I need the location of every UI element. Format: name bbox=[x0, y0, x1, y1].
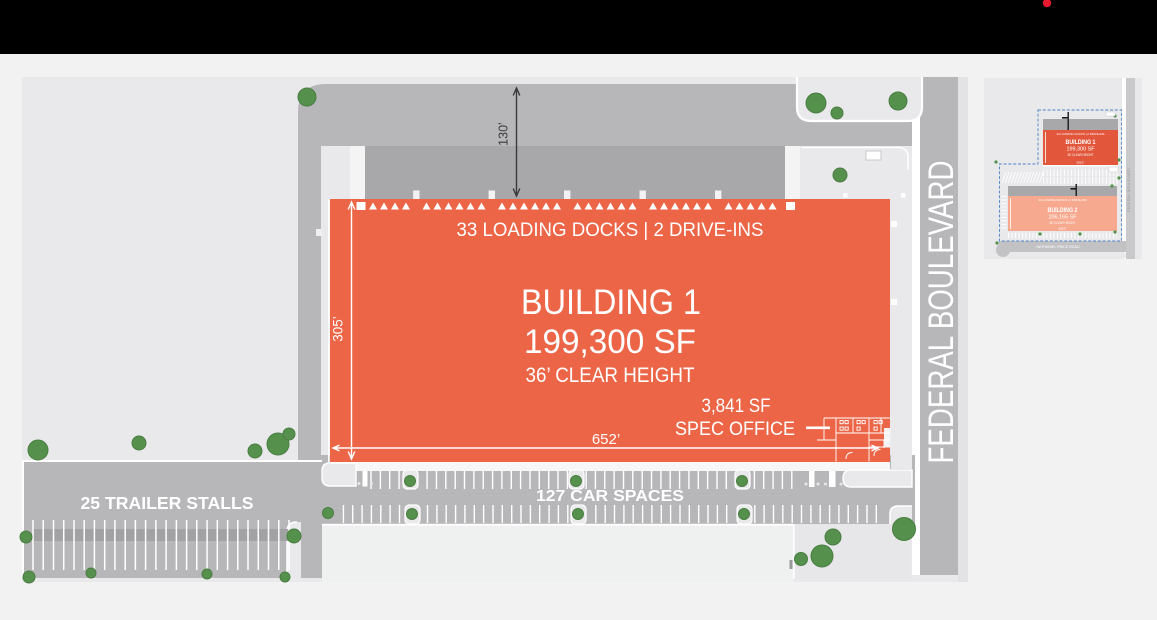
svg-text:3,841 SF: 3,841 SF bbox=[702, 395, 771, 417]
svg-text:BUILDING 1: BUILDING 1 bbox=[521, 283, 701, 322]
svg-text:199,300 SF: 199,300 SF bbox=[1067, 147, 1096, 153]
svg-text:NATHANIEL PRICE ROAD: NATHANIEL PRICE ROAD bbox=[1036, 245, 1080, 249]
svg-text:BUILDING 1: BUILDING 1 bbox=[1066, 140, 1097, 146]
svg-text:36’ CLEAR HEIGHT: 36’ CLEAR HEIGHT bbox=[1050, 221, 1076, 225]
svg-text:206,165 SF: 206,165 SF bbox=[1049, 215, 1078, 221]
svg-text:33 LOADING DOCKS | 2 DRIVE-INS: 33 LOADING DOCKS | 2 DRIVE-INS bbox=[457, 219, 764, 241]
svg-text:25 TRAILER STALLS: 25 TRAILER STALLS bbox=[81, 493, 254, 513]
svg-text:FEDERAL BOULEVARD: FEDERAL BOULEVARD bbox=[1126, 168, 1131, 212]
svg-text:32 LOADING DOCKS | 2 DRIVE-INS: 32 LOADING DOCKS | 2 DRIVE-INS bbox=[1039, 198, 1087, 202]
svg-text:BUILDING 2: BUILDING 2 bbox=[1048, 208, 1079, 214]
svg-text:199,300 SF: 199,300 SF bbox=[524, 323, 696, 361]
svg-text:36’ CLEAR HEIGHT: 36’ CLEAR HEIGHT bbox=[1068, 153, 1094, 157]
svg-text:FEDERAL BOULEVARD: FEDERAL BOULEVARD bbox=[922, 161, 961, 464]
svg-text:127 CAR SPACES: 127 CAR SPACES bbox=[536, 488, 684, 505]
svg-text:130’: 130’ bbox=[497, 122, 511, 146]
svg-text:652’: 652’ bbox=[592, 431, 620, 448]
svg-text:SPEC OFFICE: SPEC OFFICE bbox=[675, 418, 795, 440]
svg-text:652’: 652’ bbox=[1059, 227, 1067, 231]
svg-text:36’ CLEAR HEIGHT: 36’ CLEAR HEIGHT bbox=[526, 364, 695, 387]
svg-text:652’: 652’ bbox=[1077, 161, 1085, 165]
svg-text:33 LOADING DOCKS | 2 DRIVE-INS: 33 LOADING DOCKS | 2 DRIVE-INS bbox=[1057, 132, 1105, 136]
svg-text:305’: 305’ bbox=[331, 316, 346, 342]
